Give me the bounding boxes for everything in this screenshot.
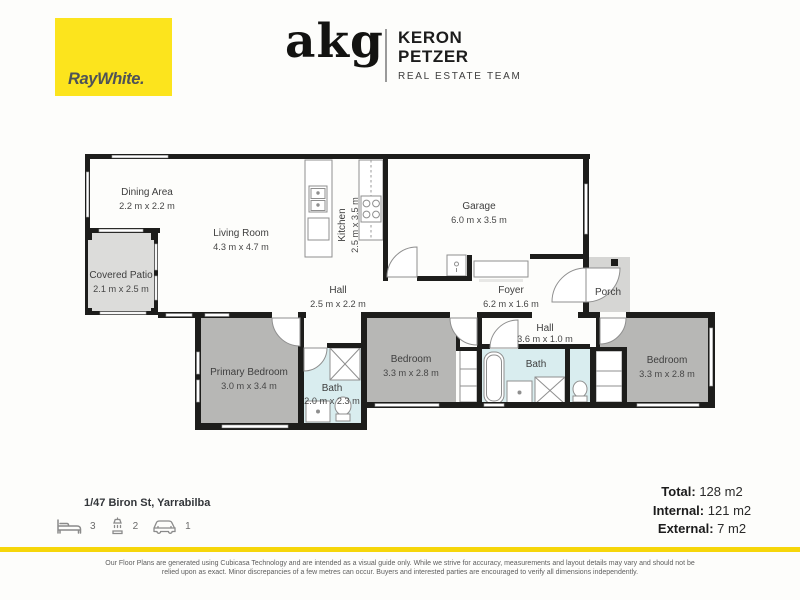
- dims-foyer: 6.2 m x 1.6 m: [483, 299, 539, 309]
- foyer-cabinet: [474, 261, 528, 277]
- label-garage: Garage: [462, 201, 496, 212]
- dims-hall-main: 2.5 m x 2.2 m: [310, 299, 366, 309]
- dims-primary-bedroom: 3.0 m x 3.4 m: [221, 381, 277, 391]
- yellow-divider: [0, 547, 800, 552]
- disclaimer: Our Floor Plans are generated using Cubi…: [0, 560, 800, 577]
- label-bath-one: Bath: [322, 383, 343, 394]
- disclaimer-line1: Our Floor Plans are generated using Cubi…: [0, 560, 800, 569]
- area-internal: Internal: 121 m2: [612, 502, 792, 521]
- label-primary-bedroom: Primary Bedroom: [210, 367, 288, 378]
- label-hall-main: Hall: [329, 285, 346, 296]
- dims-hall-bed: 3.6 m x 1.0 m: [517, 334, 573, 344]
- dims-living: 4.3 m x 4.7 m: [213, 242, 269, 252]
- shower-icon: [110, 517, 125, 535]
- door-garage: [387, 247, 417, 277]
- label-living: Living Room: [213, 228, 269, 239]
- robe-mid-bedroom: [460, 349, 477, 402]
- label-bath-two: Bath: [526, 359, 547, 370]
- stove: [361, 196, 381, 222]
- car-count: 1: [185, 521, 191, 532]
- dims-dining: 2.2 m x 2.2 m: [119, 201, 175, 211]
- door-bath-two: [490, 320, 518, 348]
- property-features: 3 2 1: [56, 517, 205, 535]
- toilet-one-tank: [336, 414, 350, 421]
- property-address: 1/47 Biron St, Yarrabilba: [84, 497, 210, 509]
- dims-garage: 6.0 m x 3.5 m: [451, 215, 507, 225]
- floorplan-flyer: RayWhite. akg KERON PETZER REAL ESTATE T…: [0, 0, 800, 600]
- label-foyer: Foyer: [498, 285, 524, 296]
- label-hall-bed: Hall: [536, 323, 553, 334]
- label-porch: Porch: [595, 287, 621, 298]
- area-external: External: 7 m2: [612, 520, 792, 539]
- label-bedroom-right: Bedroom: [647, 355, 688, 366]
- dims-kitchen: 2.5 m x 3.5 m: [350, 197, 360, 253]
- door-front-foyer: [552, 268, 586, 302]
- label-patio: Covered Patio: [89, 270, 153, 281]
- bed-count: 3: [90, 521, 96, 532]
- disclaimer-line2: relied upon as exact. Minor discrepancie…: [0, 569, 800, 578]
- dims-patio: 2.1 m x 2.5 m: [93, 284, 149, 294]
- area-summary: Total: 128 m2 Internal: 121 m2 External:…: [612, 483, 792, 539]
- label-bedroom-mid: Bedroom: [391, 354, 432, 365]
- toilet-two: [573, 381, 587, 397]
- area-total: Total: 128 m2: [612, 483, 792, 502]
- dims-bath-one: 2.0 m x 2.3 m: [304, 396, 360, 406]
- bath-count: 2: [133, 521, 139, 532]
- dims-bedroom-mid: 3.3 m x 2.8 m: [383, 368, 439, 378]
- bed-icon: [56, 517, 82, 535]
- dims-bedroom-right: 3.3 m x 2.8 m: [639, 369, 695, 379]
- label-kitchen: Kitchen: [337, 208, 348, 241]
- robe-right-bedroom: [596, 351, 622, 402]
- toilet-two-tank: [573, 396, 587, 402]
- car-icon: [152, 518, 177, 534]
- label-dining: Dining Area: [121, 187, 173, 198]
